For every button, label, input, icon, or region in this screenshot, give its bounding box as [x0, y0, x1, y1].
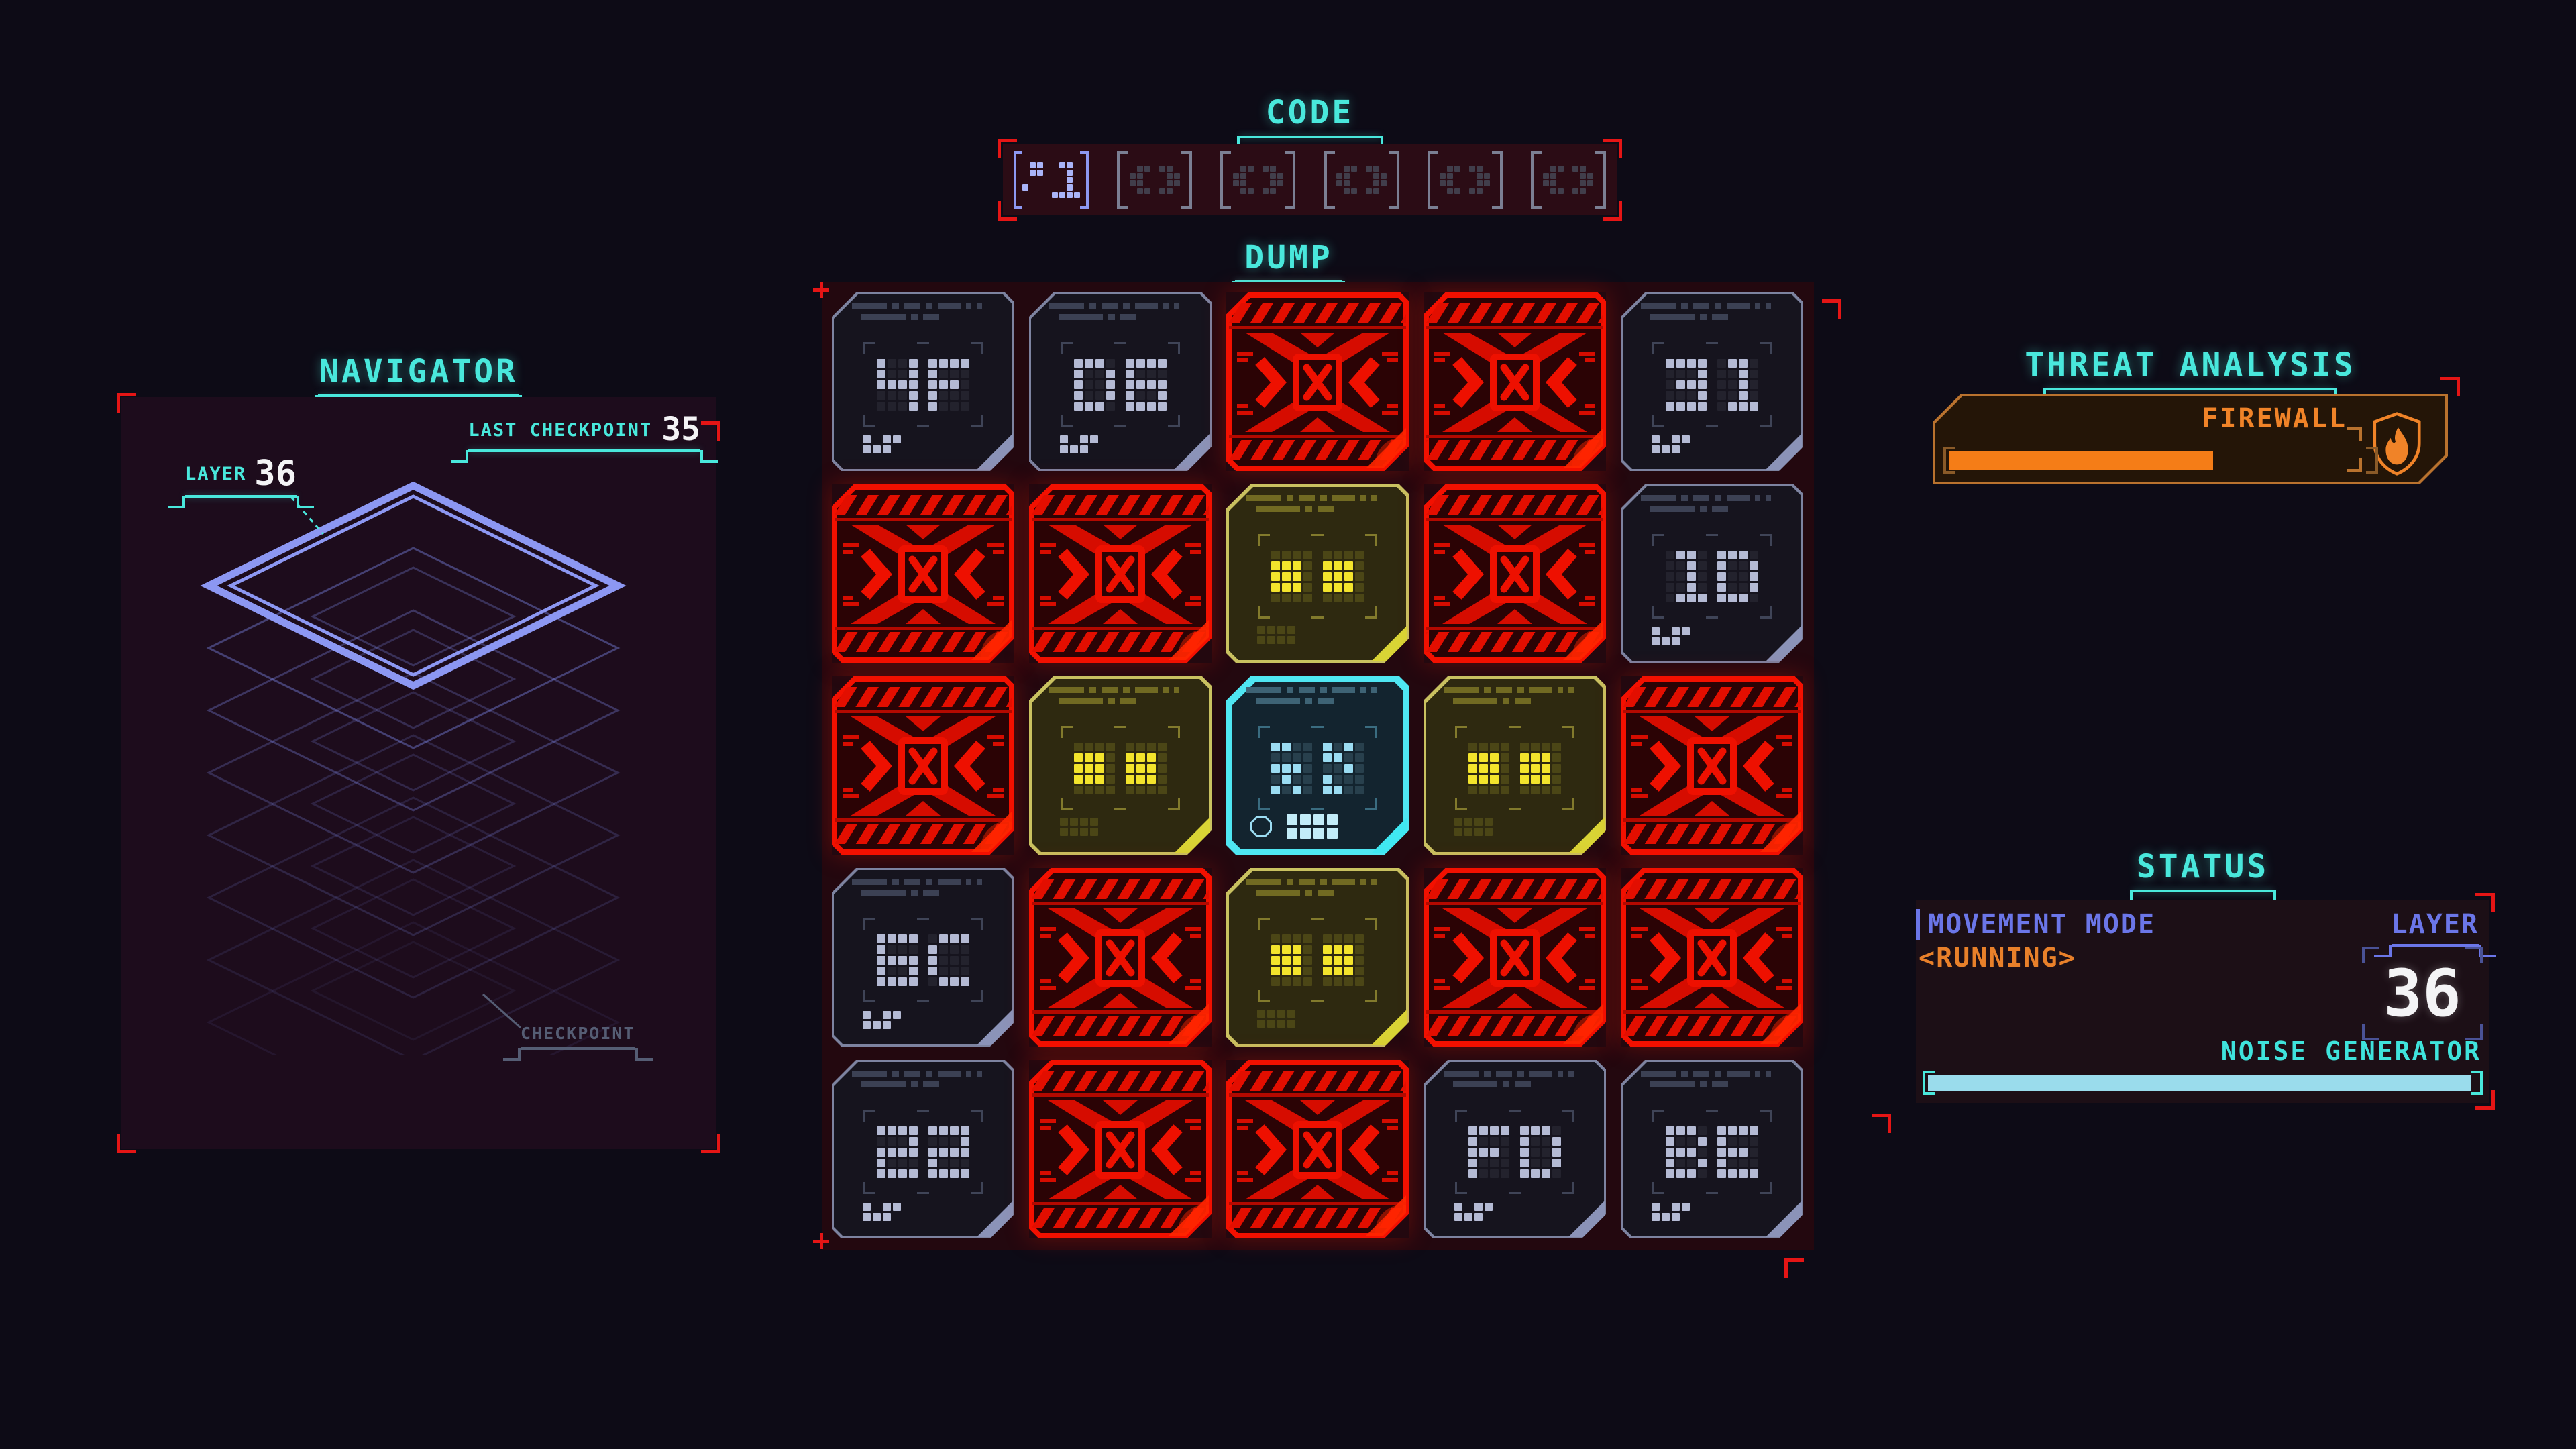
pixel-glyph: [877, 934, 918, 986]
tile-header-dashes: [1641, 495, 1783, 517]
red-corner-icon: [2440, 377, 2460, 396]
last-checkpoint-value: 35: [661, 411, 700, 448]
red-corner-icon: [998, 201, 1017, 221]
red-corner-icon: [813, 282, 829, 298]
pixel-glyph: [1271, 934, 1312, 986]
player-marker-icon: [1250, 816, 1272, 837]
status-layer-frame: 36: [2362, 947, 2483, 1040]
bar-cap-right: [2366, 447, 2378, 474]
tile-header-dashes: [852, 1071, 994, 1092]
dump-tile-data[interactable]: [1424, 1060, 1606, 1238]
dump-tile-threat[interactable]: [1621, 676, 1803, 855]
dump-tile-data[interactable]: [1621, 292, 1803, 471]
pixel-glyph: [863, 1011, 901, 1029]
tile-header-dashes: [1246, 879, 1389, 900]
tile-header-dashes: [1444, 687, 1586, 708]
threat-panel: FIREWALL: [1933, 394, 2448, 484]
pixel-glyph: [1454, 1203, 1493, 1221]
pixel-glyph: [1074, 743, 1115, 794]
checkpoint-marker: CHECKPOINT: [521, 1024, 635, 1050]
code-section-header: CODE: [1003, 94, 1617, 138]
pixel-glyph: [877, 1126, 918, 1178]
red-corner-icon: [117, 1134, 136, 1153]
status-layer-value: 36: [2362, 947, 2483, 1040]
bracket-left-icon: [1117, 151, 1128, 209]
dump-grid: [832, 292, 1803, 1238]
tile-value: [1652, 1110, 1772, 1194]
bracket-right-icon: [1595, 151, 1606, 209]
pixel-glyph: [1666, 551, 1707, 602]
last-checkpoint-readout: LAST CHECKPOINT35: [468, 411, 700, 452]
dump-tile-threat[interactable]: [1424, 484, 1606, 663]
code-slot-strip: [1003, 144, 1617, 215]
bracket-right-icon: [1389, 151, 1399, 209]
navigator-title: NAVIGATOR: [121, 353, 716, 390]
movement-mode-label: MOVEMENT MODE: [1916, 909, 2155, 940]
red-corner-icon: [701, 1134, 720, 1153]
pixel-glyph: [1440, 166, 1490, 194]
tile-value: [1652, 342, 1772, 427]
tile-value: [863, 1110, 983, 1194]
layer-stack-diagram: [121, 464, 716, 1055]
tile-value: [863, 918, 983, 1002]
tile-value: [863, 342, 983, 427]
pixel-glyph: [1717, 359, 1758, 411]
tile-header-dashes: [852, 879, 994, 900]
pixel-glyph: [1468, 1126, 1509, 1178]
status-layer-label: LAYER: [2392, 909, 2479, 940]
dump-tile-threat[interactable]: [1029, 1060, 1212, 1238]
red-corner-icon: [813, 1233, 829, 1249]
dump-tile-masked[interactable]: [1029, 676, 1212, 855]
dump-tile-threat[interactable]: [1029, 868, 1212, 1046]
status-title: STATUS: [1916, 848, 2489, 885]
pixel-glyph: [1233, 166, 1283, 194]
firewall-progress-bar: [1943, 447, 2378, 474]
tile-value: [1061, 726, 1180, 810]
pixel-glyph: [1022, 162, 1080, 198]
pixel-glyph: [1323, 551, 1364, 602]
dump-tile-threat[interactable]: [1226, 292, 1409, 471]
pixel-glyph: [1717, 551, 1758, 602]
code-slot-empty: [1117, 151, 1192, 209]
pixel-glyph: [1323, 934, 1364, 986]
pixel-glyph: [1060, 818, 1098, 836]
dump-tile-data[interactable]: [1621, 484, 1803, 663]
bracket-left-icon: [1531, 151, 1542, 209]
threat-section-header: THREAT ANALYSIS: [1933, 346, 2448, 390]
pixel-glyph: [863, 1203, 901, 1221]
pixel-glyph: [928, 1126, 969, 1178]
tile-header-dashes: [1246, 495, 1389, 517]
code-title: CODE: [1003, 94, 1617, 131]
dump-section-header: DUMP: [832, 239, 1746, 283]
code-slot-empty: [1220, 151, 1295, 209]
last-checkpoint-label: LAST CHECKPOINT: [468, 420, 652, 441]
dump-tile-data[interactable]: [1621, 1060, 1803, 1238]
firewall-label: FIREWALL: [2202, 403, 2347, 434]
dump-tile-masked[interactable]: [1226, 868, 1409, 1046]
status-title-rule: [2133, 890, 2273, 892]
tile-value: [1258, 918, 1377, 1002]
pixel-glyph: [1543, 166, 1593, 194]
bracket-right-icon: [1181, 151, 1192, 209]
pixel-glyph: [1468, 743, 1509, 794]
threat-title-rule: [2046, 388, 2334, 390]
code-slot-empty: [1428, 151, 1503, 209]
tile-value: [1455, 726, 1574, 810]
pixel-glyph: [1652, 627, 1690, 645]
red-corner-icon: [998, 139, 1017, 158]
pixel-glyph: [1126, 743, 1167, 794]
noise-generator-label: NOISE GENERATOR: [2221, 1036, 2481, 1066]
tile-value: [1652, 534, 1772, 619]
status-layer-readout: LAYER: [2392, 909, 2479, 947]
dump-tile-threat[interactable]: [832, 484, 1014, 663]
dump-tile-threat[interactable]: [1424, 868, 1606, 1046]
pixel-glyph: [1074, 359, 1115, 411]
pixel-glyph: [928, 359, 969, 411]
tile-header-dashes: [1049, 303, 1191, 325]
pixel-glyph: [877, 359, 918, 411]
tile-value: [1258, 726, 1377, 810]
tile-value: [1455, 1110, 1574, 1194]
checkpoint-label: CHECKPOINT: [521, 1024, 635, 1043]
tile-header-dashes: [1444, 1071, 1586, 1092]
tile-header-dashes: [852, 303, 994, 325]
dump-tile-threat[interactable]: [832, 676, 1014, 855]
bracket-right-icon: [1492, 151, 1503, 209]
bracket-left-icon: [1324, 151, 1335, 209]
red-corner-icon: [1784, 1258, 1804, 1278]
pixel-glyph: [1271, 551, 1312, 602]
navigator-panel: LAST CHECKPOINT35 LAYER36 CHECKPOINT: [121, 397, 716, 1149]
dump-tile-threat[interactable]: [1226, 1060, 1409, 1238]
noise-bar-fill: [1928, 1075, 2471, 1091]
code-slot-filled: [1014, 151, 1089, 209]
red-corner-icon: [1603, 201, 1622, 221]
firewall-bar-fill: [1949, 451, 2213, 470]
threat-title: THREAT ANALYSIS: [1933, 346, 2448, 384]
pixel-glyph: [1126, 359, 1167, 411]
firewall-shield-icon: [2370, 411, 2424, 476]
tile-header-dashes: [1246, 687, 1389, 708]
code-title-rule: [1240, 136, 1381, 138]
pixel-glyph: [1257, 626, 1295, 644]
pixel-glyph: [1520, 743, 1561, 794]
status-panel: MOVEMENT MODE <RUNNING> LAYER 36 NOISE G…: [1916, 900, 2489, 1103]
dump-title: DUMP: [832, 239, 1746, 276]
tile-header-dashes: [1641, 303, 1783, 325]
pixel-glyph: [1717, 1126, 1758, 1178]
pixel-glyph: [1520, 1126, 1561, 1178]
pixel-glyph: [928, 934, 969, 986]
code-slot-empty: [1324, 151, 1399, 209]
pixel-glyph: [1652, 1203, 1690, 1221]
pixel-glyph: [1130, 166, 1180, 194]
tile-header-dashes: [1049, 687, 1191, 708]
red-corner-icon: [1603, 139, 1622, 158]
pixel-glyph: [1060, 435, 1098, 453]
pixel-glyph: [1287, 814, 1338, 839]
pixel-glyph: [1666, 1126, 1707, 1178]
dump-tile-data[interactable]: [832, 292, 1014, 471]
bracket-right-icon: [1285, 151, 1295, 209]
dump-tile-threat[interactable]: [1621, 868, 1803, 1046]
pixel-glyph: [1454, 818, 1493, 836]
bracket-left-icon: [1428, 151, 1438, 209]
pixel-glyph: [1652, 435, 1690, 453]
noise-generator-bar: [1923, 1071, 2483, 1095]
last-checkpoint-rule: [468, 449, 700, 452]
pixel-glyph: [863, 435, 901, 453]
pixel-glyph: [1257, 1010, 1295, 1028]
dump-tile-player[interactable]: [1226, 676, 1409, 855]
pixel-glyph: [1271, 743, 1312, 794]
bracket-left-icon: [1220, 151, 1231, 209]
status-section-header: STATUS: [1916, 848, 2489, 892]
red-corner-icon: [1822, 299, 1841, 319]
tile-header-dashes: [1641, 1071, 1783, 1092]
tile-value: [1061, 342, 1180, 427]
red-corner-icon: [1872, 1114, 1891, 1133]
bracket-left-icon: [1014, 151, 1022, 209]
checkpoint-rule: [521, 1047, 635, 1050]
dump-tile-data[interactable]: [832, 868, 1014, 1046]
dump-tile-data[interactable]: [832, 1060, 1014, 1238]
pixel-glyph: [1323, 743, 1364, 794]
bar-cap-right: [2471, 1071, 2483, 1095]
dump-tile-masked[interactable]: [1424, 676, 1606, 855]
bracket-right-icon: [1080, 151, 1089, 209]
dump-tile-masked[interactable]: [1226, 484, 1409, 663]
code-slot-empty: [1531, 151, 1606, 209]
tile-value: [1258, 534, 1377, 619]
movement-mode-value: <RUNNING>: [1919, 943, 2076, 973]
pixel-glyph: [1666, 359, 1707, 411]
hack-game-screen: CODE: [0, 0, 2576, 1449]
red-corner-icon: [117, 393, 136, 413]
dump-tile-threat[interactable]: [1424, 292, 1606, 471]
navigator-section-header: NAVIGATOR: [121, 353, 716, 397]
dump-tile-threat[interactable]: [1029, 484, 1212, 663]
dump-tile-data[interactable]: [1029, 292, 1212, 471]
red-corner-icon: [701, 421, 720, 441]
pixel-glyph: [1336, 166, 1387, 194]
